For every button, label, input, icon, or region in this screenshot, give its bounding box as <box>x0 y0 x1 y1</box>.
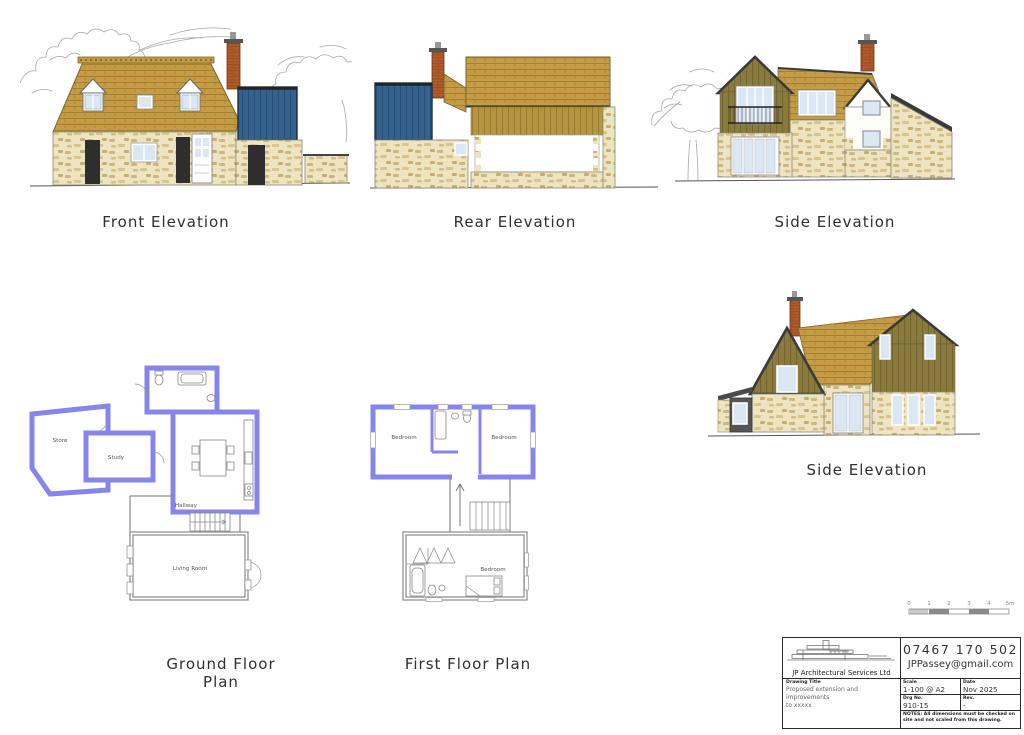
room-label-living-room: Living Room <box>173 566 207 572</box>
scale-cell: Scale 1-100 @ A2 <box>901 679 961 694</box>
date-cell: Date Nov 2025 <box>961 679 1020 694</box>
scale-bar: 0 1 2 3 4 5m <box>903 596 1021 622</box>
ground-line <box>675 179 955 181</box>
roof-window <box>137 95 153 109</box>
drg-no-cell: Drg No. 910-15 <box>901 695 961 710</box>
chimney <box>858 34 877 71</box>
window <box>908 395 919 425</box>
wardrobe-symbol <box>413 548 455 563</box>
main-roof <box>53 57 239 132</box>
window <box>863 101 880 115</box>
window <box>733 403 747 424</box>
drawing-title-line2: to xxxxx <box>786 702 897 710</box>
front-door <box>192 134 212 183</box>
picture-window <box>777 366 797 392</box>
stone-wall <box>375 140 468 188</box>
email-address: JPPassey@gmail.com <box>901 659 1020 670</box>
drawing-title-label: Drawing Title <box>786 680 897 685</box>
room-label-study: Study <box>108 455 125 461</box>
svg-text:1: 1 <box>927 601 931 607</box>
window <box>924 395 935 425</box>
room-label-bedroom-left: Bedroom <box>391 435 416 441</box>
drg-rev-row: Drg No. 910-15 Rev. - <box>901 695 1020 711</box>
chimney <box>224 32 243 89</box>
room-label-hallway: Hallway <box>175 503 198 509</box>
stone-wall-left <box>718 133 792 177</box>
front-elevation-drawing <box>20 5 352 205</box>
caption-front-elevation: Front Elevation <box>100 213 232 231</box>
garden-wall <box>303 155 349 183</box>
caption-side-elevation-mid: Side Elevation <box>792 461 942 479</box>
stone-pier <box>603 107 615 188</box>
svg-text:4: 4 <box>987 601 991 607</box>
window <box>880 335 890 359</box>
drg-no-value: 910-15 <box>903 701 958 710</box>
bathroom-lower <box>407 548 445 596</box>
window <box>131 143 157 162</box>
room-label-store: Store <box>53 438 68 444</box>
meta-cells: Scale 1-100 @ A2 Date Nov 2025 Drg No. 9… <box>901 679 1020 728</box>
caption-ground-floor-plan: Ground Floor Plan <box>146 655 296 691</box>
gable-roof-end <box>444 74 466 112</box>
french-doors <box>833 393 863 433</box>
side-elevation-mid-drawing <box>700 288 987 483</box>
glass-doors <box>731 137 779 175</box>
svg-text:2: 2 <box>947 601 951 607</box>
caption-rear-elevation: Rear Elevation <box>440 213 590 231</box>
small-window <box>455 143 467 155</box>
drawing-sheet: Front Elevation Rear Elevation <box>0 0 1024 735</box>
title-block: JP Architectural Services Ltd 07467 170 … <box>782 637 1021 729</box>
drawing-title-line1: Proposed extension and improvements <box>786 686 897 702</box>
glazed-opening <box>475 135 599 172</box>
porch <box>176 137 190 183</box>
svg-text:3: 3 <box>967 601 971 607</box>
stone-wall-mid <box>790 120 846 177</box>
caption-side-elevation-top: Side Elevation <box>770 213 900 231</box>
rear-elevation-drawing <box>370 40 660 205</box>
caption-first-floor-plan: First Floor Plan <box>393 655 543 673</box>
extension-door <box>248 145 265 185</box>
extension-stone-wall <box>236 140 302 185</box>
stone-base <box>471 172 603 188</box>
blue-clad-extension <box>238 87 297 140</box>
window <box>892 395 903 425</box>
rev-value: - <box>963 701 1018 710</box>
room-label-bedroom-right: Bedroom <box>491 435 516 441</box>
scale-bar-segments <box>909 609 1009 614</box>
window <box>863 131 880 147</box>
middle-bay <box>824 385 870 435</box>
scale-value: 1-100 @ A2 <box>903 685 958 694</box>
ground-floor-plan-drawing: Store Study Hallway Living Room <box>28 356 265 616</box>
drawing-title-cell: Drawing Title Proposed extension and imp… <box>783 679 901 728</box>
title-block-top-row: JP Architectural Services Ltd 07467 170 … <box>783 638 1020 679</box>
company-cell: JP Architectural Services Ltd <box>783 638 901 678</box>
blue-clad-extension <box>375 83 432 140</box>
first-floor-plan-drawing: Bedroom Bedroom Bedroom <box>366 398 543 615</box>
stair-corridor <box>450 472 510 532</box>
side-door <box>85 140 100 184</box>
svg-text:5m: 5m <box>1006 601 1015 607</box>
scale-date-row: Scale 1-100 @ A2 Date Nov 2025 <box>901 679 1020 695</box>
roof-window-band <box>798 90 836 116</box>
room-label-bedroom-rear: Bedroom <box>480 567 505 573</box>
company-logo <box>783 638 899 664</box>
dark-annex <box>718 387 752 432</box>
window <box>925 335 935 359</box>
timber-clad-band <box>471 107 603 135</box>
main-roof <box>466 57 610 107</box>
notes-label: NOTES: <box>903 712 922 717</box>
stairs <box>190 513 230 531</box>
company-name: JP Architectural Services Ltd <box>783 669 900 677</box>
scale-bar-labels: 0 1 2 3 4 5m <box>907 601 1014 607</box>
phone-number: 07467 170 502 <box>901 642 1020 657</box>
rev-cell: Rev. - <box>961 695 1020 710</box>
bed <box>466 576 502 596</box>
date-value: Nov 2025 <box>963 685 1018 694</box>
notes-cell: NOTES: All dimensions must be checked on… <box>901 711 1020 724</box>
contact-cell: 07467 170 502 JPPassey@gmail.com <box>901 638 1020 678</box>
stone-lean-to <box>891 93 952 178</box>
svg-text:0: 0 <box>907 601 911 607</box>
side-elevation-top-drawing <box>650 30 962 205</box>
title-block-bottom-row: Drawing Title Proposed extension and imp… <box>783 679 1020 728</box>
